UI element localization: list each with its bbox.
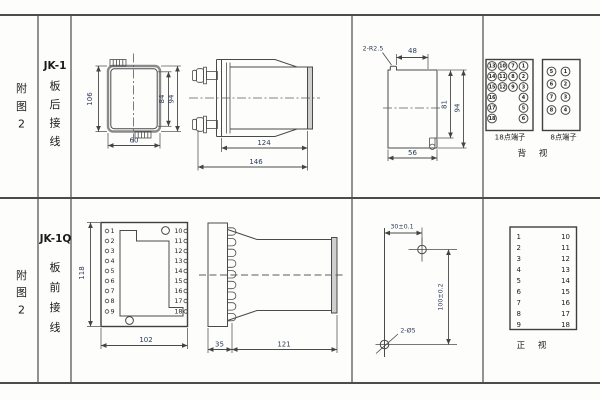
wiring-char: 后	[50, 98, 61, 111]
terminal-number: 3	[564, 95, 568, 101]
wiring-char: 前	[50, 280, 61, 294]
figure-label-bottom: 附 图 2	[16, 268, 27, 317]
terminal-number: 14	[174, 267, 182, 275]
dim-total-length: 146	[249, 158, 263, 166]
terminal-number: 8	[517, 310, 521, 318]
jk1-side-view-drawing: 124 146	[189, 60, 320, 171]
terminal-number: 2	[522, 74, 525, 80]
terminal-number: 17	[561, 310, 570, 318]
front-view-label: 正 视	[517, 340, 552, 351]
dim-width: 102	[139, 336, 152, 344]
figure-char: 附	[16, 81, 27, 95]
terminal-number: 15	[561, 288, 570, 296]
dim-outer-height: 94	[168, 94, 176, 103]
terminal-circles-8: 5 1 6 2 7 3 8 4	[547, 67, 570, 114]
terminal-18-label: 18点端子	[495, 133, 526, 142]
terminal-number: 15	[174, 277, 182, 285]
dim-overall-height: 106	[86, 92, 94, 106]
mounting-hole	[162, 227, 170, 235]
terminal-number: 12	[561, 255, 570, 263]
terminal-number: 12	[499, 85, 506, 91]
terminal-number: 1	[111, 227, 115, 235]
terminal-number: 11	[174, 237, 182, 245]
terminal-number: 3	[111, 247, 115, 255]
wiring-char: 板	[50, 260, 61, 274]
terminal-number: 8	[511, 74, 515, 80]
dim-bottom-width: 56	[408, 149, 417, 157]
terminal-number: 16	[561, 299, 570, 307]
figure-char: 2	[18, 118, 25, 131]
terminal-number: 7	[517, 299, 521, 307]
mounting-hole	[126, 317, 134, 325]
terminal-number: 10	[174, 227, 182, 235]
drill-plan-drawing: 30±0.1 100±0.2 2-Ø5	[376, 224, 458, 358]
terminal-number: 13	[489, 64, 496, 70]
terminal-number: 9	[517, 321, 521, 329]
terminal-number: 11	[499, 74, 506, 80]
terminal-number: 8	[111, 297, 115, 305]
wiring-char: 线	[50, 320, 61, 334]
terminal-number: 4	[522, 95, 526, 101]
figure-char: 图	[16, 100, 27, 113]
terminal-front-table: 1 2 3 4 5 6 7 8 9 10 11 12 13 14 15 16 1…	[510, 227, 577, 351]
wiring-char: 接	[50, 301, 61, 314]
table-right-column: 10 11 12 13 14 15 16 17 18	[561, 233, 570, 329]
dim-plate-depth: 35	[215, 341, 224, 349]
terminal-number: 7	[111, 287, 115, 295]
terminal-number: 2	[564, 82, 567, 88]
figure-char: 附	[16, 268, 27, 282]
wiring-char: 板	[50, 79, 61, 93]
dim-hole-spacing-h: 30±0.1	[390, 224, 413, 231]
rear-view-label: 背 视	[518, 148, 553, 159]
wiring-char: 线	[50, 134, 61, 148]
terminal-number: 16	[489, 95, 496, 101]
terminal-number: 5	[550, 69, 554, 75]
terminal-number: 18	[561, 321, 570, 329]
dim-height: 118	[78, 266, 86, 279]
dim-hole-diameter: 2-Ø5	[400, 327, 415, 335]
dim-body-length: 124	[257, 139, 271, 147]
terminal-circles-18: 13 10 7 1 14 11 8 2 15 12 9 3 16 4 17 5 …	[488, 62, 528, 123]
model-label-jk1q: JK-1Q 板 前 接 线	[39, 233, 72, 334]
terminal-number: 5	[517, 277, 521, 285]
terminal-number: 6	[522, 116, 526, 122]
terminal-number: 12	[174, 247, 182, 255]
technical-drawing-sheet: 附 图 2 JK-1 板 后 接 线 106	[0, 0, 600, 400]
terminal-number: 3	[522, 85, 526, 91]
slot-end	[430, 144, 435, 149]
figure-char: 图	[16, 286, 27, 299]
terminal-number: 5	[111, 267, 115, 275]
terminal-number: 5	[522, 106, 526, 112]
dim-inner-height: 84	[158, 94, 166, 103]
drawing-canvas: 附 图 2 JK-1 板 后 接 线 106	[0, 0, 600, 400]
figure-char: 2	[18, 304, 25, 317]
terminal-number: 4	[111, 257, 115, 265]
terminal-8-rear-diagram: 5 1 6 2 7 3 8 4 8点端子	[543, 60, 581, 142]
front-right-terminals: 10 11 12 13 14 15 16 17 18	[174, 227, 187, 316]
terminal-number: 17	[489, 106, 496, 112]
terminal-number: 9	[511, 85, 515, 91]
figure-label-top: 附 图 2	[16, 81, 27, 131]
terminal-number: 6	[517, 288, 522, 296]
terminal-number: 14	[561, 277, 570, 285]
dim-slot-radius: 2-R2.5	[363, 46, 384, 53]
terminal-number: 6	[111, 277, 115, 285]
terminal-number: 17	[174, 297, 182, 305]
terminal-number: 16	[174, 287, 182, 295]
leader-line	[376, 334, 398, 354]
terminal-number: 18	[489, 116, 496, 122]
terminal-number: 13	[174, 257, 182, 265]
terminal-number: 7	[511, 64, 515, 70]
terminal-number: 4	[564, 108, 568, 114]
terminal-number: 11	[561, 244, 570, 252]
terminal-number: 1	[564, 69, 568, 75]
jk1q-front-view-drawing: 1 2 3 4 5 6 7 8 9 10 11 12 13 14 15 16 1…	[78, 223, 188, 350]
dim-outer-height: 94	[454, 103, 462, 112]
terminal-number: 15	[489, 85, 496, 91]
terminal-number: 1	[517, 233, 521, 241]
terminal-8-label: 8点端子	[550, 133, 576, 142]
model-name: JK-1	[43, 60, 67, 72]
front-left-terminals: 1 2 3 4 5 6 7 8 9	[105, 227, 114, 316]
terminal-number: 6	[550, 82, 554, 88]
dim-inner-height: 81	[441, 100, 449, 109]
dim-top-width: 48	[408, 47, 417, 55]
terminal-number: 8	[550, 108, 554, 114]
terminal-number: 4	[517, 266, 522, 274]
panel-cutout-drawing: 2-R2.5 48 81 94 56	[363, 46, 467, 162]
terminal-18-rear-diagram: 13 10 7 1 14 11 8 2 15 12 9 3 16 4 17 5 …	[486, 60, 533, 142]
terminal-number: 7	[550, 95, 554, 101]
dim-width: 60	[130, 137, 139, 145]
jk1q-side-view-drawing: 35 121	[199, 223, 343, 353]
terminal-bumps	[228, 228, 236, 321]
table-left-column: 1 2 3 4 5 6 7 8 9	[517, 233, 522, 329]
terminal-number: 9	[111, 308, 115, 316]
terminal-number: 2	[111, 237, 115, 245]
mounting-bolt-bottom	[193, 116, 218, 133]
model-name: JK-1Q	[39, 233, 72, 245]
terminal-number: 10	[561, 233, 570, 241]
dim-body-depth: 121	[277, 341, 290, 349]
mounting-bolt-top	[193, 67, 218, 84]
terminal-number: 3	[517, 255, 521, 263]
leader-line	[383, 53, 392, 66]
terminal-number: 18	[174, 308, 182, 316]
terminal-number: 2	[517, 244, 521, 252]
terminal-number: 1	[522, 64, 526, 70]
terminal-number: 10	[499, 64, 506, 70]
dim-hole-spacing-v: 100±0.2	[438, 283, 445, 310]
terminal-number: 14	[489, 74, 496, 80]
model-label-jk1: JK-1 板 后 接 线	[43, 60, 67, 148]
jk1-case-rear-view-drawing: 106 84 94 60	[86, 54, 181, 149]
wiring-char: 接	[50, 117, 61, 130]
terminal-number: 13	[561, 266, 570, 274]
